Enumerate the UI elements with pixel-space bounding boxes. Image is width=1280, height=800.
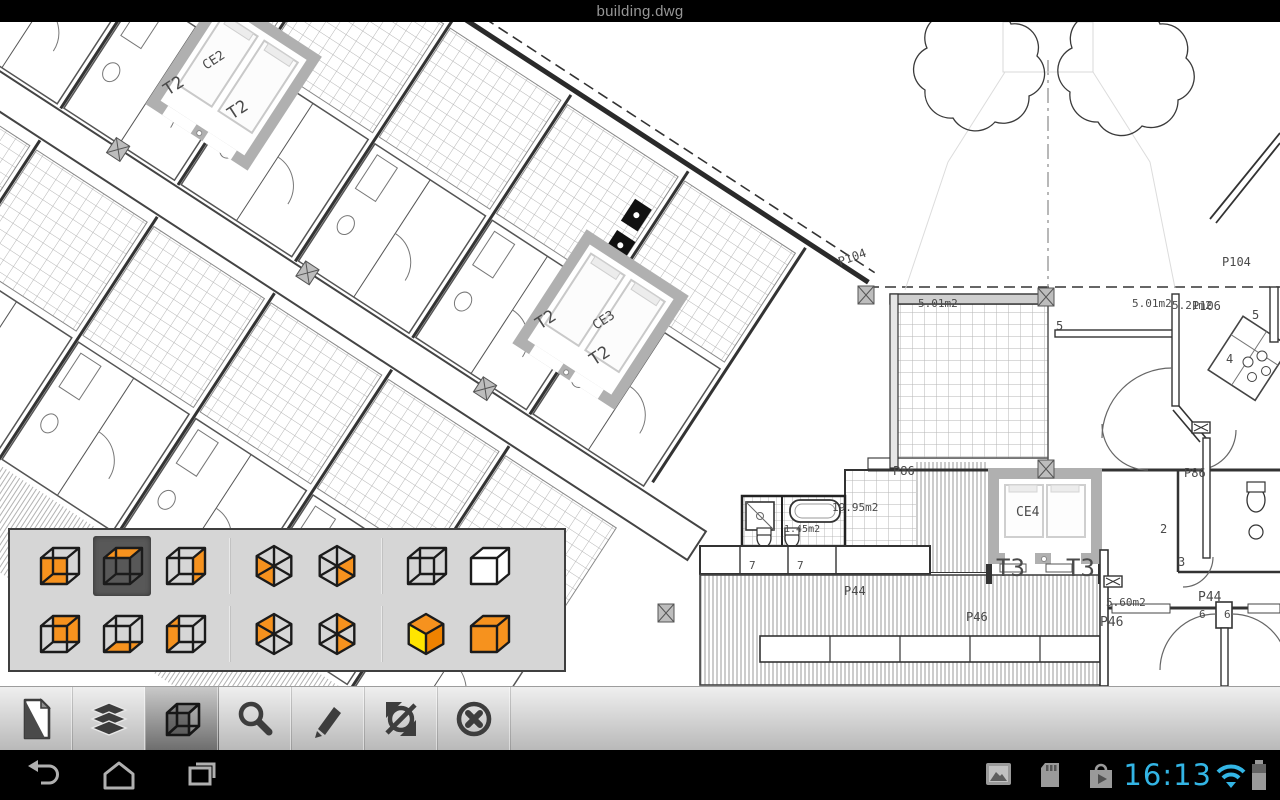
wifi-status-icon — [1214, 760, 1248, 790]
plan-label: 7 — [749, 559, 756, 572]
plan-label: 6 — [1224, 608, 1231, 621]
recents-icon[interactable] — [183, 757, 219, 793]
plan-label: 4 — [1226, 352, 1233, 366]
rotate-button[interactable] — [365, 687, 438, 750]
plan-label: T3 — [1066, 554, 1095, 582]
bottom-toolbar — [0, 686, 1280, 750]
document-button[interactable] — [0, 687, 73, 750]
nw-isometric-cube-icon[interactable] — [245, 604, 303, 664]
plan-label: P44 — [844, 584, 866, 598]
store-upload-status-icon — [1088, 762, 1114, 789]
hidden-line-cube-icon[interactable] — [460, 536, 518, 596]
close-icon — [450, 695, 498, 743]
front-view-cube-icon[interactable] — [30, 536, 88, 596]
pencil-icon — [304, 695, 352, 743]
plan-label: P44 — [1198, 590, 1222, 605]
plan-label: 6 — [1199, 608, 1206, 621]
orbit-icon — [377, 695, 425, 743]
plan-label: P104 — [1222, 255, 1251, 269]
plan-label: 1.45m2 — [784, 524, 820, 535]
ne-isometric-cube-icon[interactable] — [308, 604, 366, 664]
plan-label: 5 — [1252, 308, 1259, 322]
wireframe-cube-icon[interactable] — [397, 536, 455, 596]
right-view-cube-icon[interactable] — [156, 536, 214, 596]
system-nav-bar: 16:13 — [0, 750, 1280, 800]
back-view-cube-icon[interactable] — [30, 604, 88, 664]
plan-label: 7 — [797, 559, 804, 572]
shaded-cube-icon[interactable] — [397, 604, 455, 664]
close-button[interactable] — [438, 687, 511, 750]
plan-label: P46 — [966, 610, 988, 624]
plan-label: P46 — [1100, 615, 1123, 630]
home-icon[interactable] — [101, 757, 137, 793]
battery-status-icon — [1250, 758, 1268, 792]
plan-label: 5.01m2 — [1132, 297, 1172, 310]
document-icon — [12, 695, 60, 743]
se-isometric-cube-icon[interactable] — [308, 536, 366, 596]
app-screen: building.dwg — [0, 0, 1280, 800]
plan-label: 5.21m2 — [1172, 299, 1212, 312]
gallery-status-icon — [985, 762, 1013, 788]
left-view-cube-icon[interactable] — [156, 604, 214, 664]
sw-isometric-cube-icon[interactable] — [245, 536, 303, 596]
plan-label: 5 — [1056, 319, 1063, 333]
file-title: building.dwg — [597, 3, 684, 20]
plan-label: CE4 — [1016, 505, 1040, 520]
plan-label: P86 — [1184, 466, 1206, 480]
zoom-button[interactable] — [219, 687, 292, 750]
viewcube-popup — [8, 528, 566, 672]
back-icon[interactable] — [24, 757, 60, 793]
cube-3d-button[interactable] — [146, 687, 219, 750]
magnifier-icon — [231, 695, 279, 743]
plan-label: P86 — [893, 464, 915, 478]
title-bar: building.dwg — [0, 0, 1280, 22]
cube-3d-icon — [158, 695, 206, 743]
plan-label: 3 — [1178, 555, 1185, 569]
plan-label: 5.01m2 — [918, 297, 958, 310]
plan-label: 5.60m2 — [1106, 596, 1146, 609]
top-view-cube-icon[interactable] — [93, 536, 151, 596]
layers-icon — [85, 695, 133, 743]
plan-label: 2 — [1160, 522, 1167, 536]
plan-label: 19.95m2 — [832, 501, 878, 514]
solid-cube-icon[interactable] — [460, 604, 518, 664]
sd-card-status-icon — [1038, 761, 1062, 789]
draw-button[interactable] — [292, 687, 365, 750]
layers-button[interactable] — [73, 687, 146, 750]
status-clock: 16:13 — [1123, 758, 1212, 792]
bottom-view-cube-icon[interactable] — [93, 604, 151, 664]
plan-label: T3 — [996, 554, 1025, 582]
